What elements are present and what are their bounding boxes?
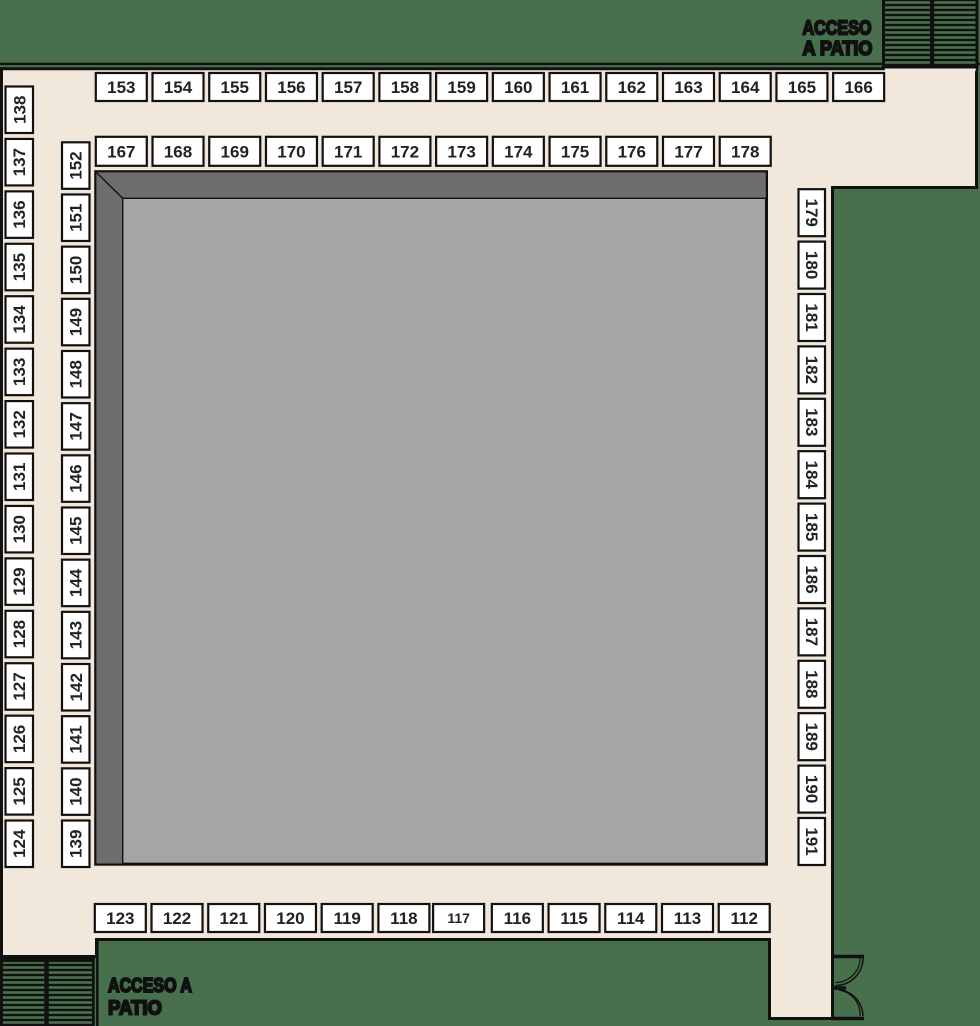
svg-text:135: 135 (10, 253, 29, 281)
svg-text:112: 112 (731, 909, 758, 928)
svg-text:183: 183 (802, 408, 821, 436)
svg-text:ACCESO: ACCESO (803, 17, 872, 39)
svg-text:180: 180 (802, 251, 821, 279)
svg-text:127: 127 (10, 672, 29, 700)
svg-text:174: 174 (504, 142, 533, 161)
svg-text:146: 146 (67, 464, 86, 492)
svg-text:160: 160 (504, 78, 532, 97)
svg-text:142: 142 (67, 673, 86, 701)
svg-text:143: 143 (67, 621, 86, 649)
svg-text:118: 118 (390, 909, 417, 928)
svg-text:173: 173 (447, 142, 475, 161)
svg-text:187: 187 (802, 618, 821, 646)
svg-text:123: 123 (106, 909, 134, 928)
svg-text:155: 155 (221, 78, 249, 97)
svg-text:172: 172 (391, 142, 419, 161)
svg-text:164: 164 (731, 78, 760, 97)
svg-text:157: 157 (334, 78, 362, 97)
svg-text:147: 147 (67, 412, 86, 440)
svg-text:139: 139 (67, 830, 86, 858)
svg-text:165: 165 (788, 78, 816, 97)
svg-text:113: 113 (674, 909, 701, 928)
svg-text:121: 121 (220, 909, 248, 928)
svg-text:158: 158 (391, 78, 419, 97)
svg-text:132: 132 (10, 410, 29, 438)
svg-text:191: 191 (802, 827, 821, 855)
svg-text:177: 177 (674, 142, 702, 161)
svg-text:ACCESO A: ACCESO A (108, 975, 192, 997)
svg-text:161: 161 (561, 78, 589, 97)
svg-text:156: 156 (277, 78, 305, 97)
svg-text:166: 166 (844, 78, 872, 97)
svg-text:153: 153 (107, 78, 135, 97)
svg-text:148: 148 (67, 360, 86, 388)
svg-text:144: 144 (67, 568, 86, 597)
svg-text:130: 130 (10, 515, 29, 543)
svg-text:129: 129 (10, 567, 29, 595)
svg-text:137: 137 (10, 148, 29, 176)
svg-text:178: 178 (731, 142, 759, 161)
svg-text:169: 169 (221, 142, 249, 161)
svg-text:114: 114 (617, 909, 645, 928)
svg-text:176: 176 (618, 142, 646, 161)
svg-text:122: 122 (163, 909, 191, 928)
svg-text:167: 167 (107, 142, 135, 161)
svg-text:PATIO: PATIO (108, 998, 162, 1020)
svg-text:188: 188 (802, 670, 821, 698)
svg-text:181: 181 (802, 303, 821, 331)
svg-text:A PATIO: A PATIO (803, 38, 873, 60)
svg-text:184: 184 (802, 461, 821, 490)
svg-text:170: 170 (277, 142, 305, 161)
svg-text:168: 168 (164, 142, 192, 161)
svg-text:179: 179 (802, 199, 821, 227)
svg-text:125: 125 (10, 777, 29, 805)
svg-text:190: 190 (802, 775, 821, 803)
svg-text:154: 154 (164, 78, 193, 97)
svg-text:145: 145 (67, 517, 86, 545)
svg-text:186: 186 (802, 565, 821, 593)
svg-text:140: 140 (67, 777, 86, 805)
svg-text:116: 116 (504, 909, 531, 928)
svg-text:131: 131 (10, 463, 29, 491)
svg-text:119: 119 (333, 909, 360, 928)
svg-text:128: 128 (10, 620, 29, 648)
svg-text:185: 185 (802, 513, 821, 541)
svg-text:189: 189 (802, 723, 821, 751)
svg-text:150: 150 (67, 256, 86, 284)
svg-text:151: 151 (67, 204, 86, 232)
svg-text:149: 149 (67, 308, 86, 336)
svg-text:136: 136 (10, 200, 29, 228)
svg-text:126: 126 (10, 725, 29, 753)
svg-text:120: 120 (276, 909, 304, 928)
svg-text:134: 134 (10, 305, 29, 334)
svg-text:115: 115 (560, 909, 587, 928)
svg-text:162: 162 (618, 78, 646, 97)
svg-text:175: 175 (561, 142, 589, 161)
svg-text:117: 117 (447, 910, 470, 926)
svg-text:138: 138 (10, 96, 29, 124)
svg-text:124: 124 (10, 829, 29, 858)
svg-text:159: 159 (447, 78, 475, 97)
svg-text:133: 133 (10, 358, 29, 386)
svg-text:182: 182 (802, 356, 821, 384)
svg-text:141: 141 (67, 725, 86, 753)
svg-text:171: 171 (334, 142, 362, 161)
svg-text:163: 163 (674, 78, 702, 97)
svg-text:152: 152 (67, 151, 86, 179)
